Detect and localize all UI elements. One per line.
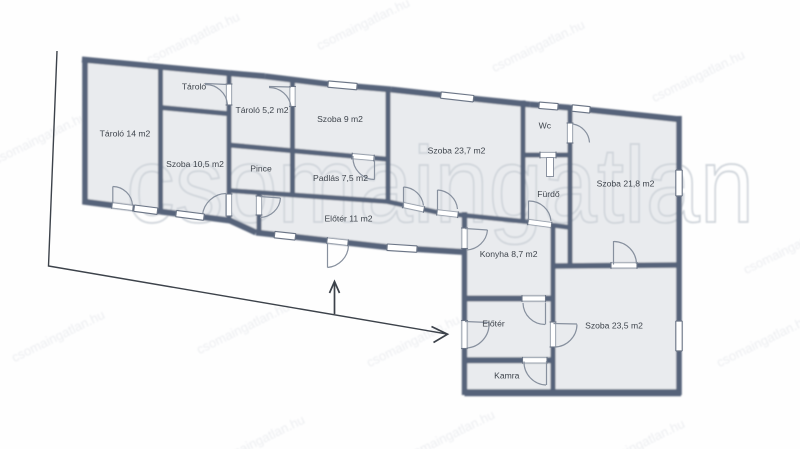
svg-text:Szoba 23,7 m2: Szoba 23,7 m2 (428, 146, 486, 156)
svg-text:Konyha 8,7 m2: Konyha 8,7 m2 (480, 249, 538, 259)
svg-text:csomaingatlan: csomaingatlan (126, 124, 754, 245)
svg-text:Wc: Wc (539, 120, 552, 130)
svg-text:Szoba 23,5 m2: Szoba 23,5 m2 (585, 321, 643, 331)
svg-text:Tároló: Tároló (182, 82, 207, 92)
svg-text:Előtér: Előtér (482, 319, 505, 329)
svg-text:Pince: Pince (250, 164, 272, 174)
svg-text:Szoba 10,5 m2: Szoba 10,5 m2 (166, 159, 224, 169)
svg-text:Tároló 5,2 m2: Tároló 5,2 m2 (235, 105, 288, 115)
svg-text:Előtér 11 m2: Előtér 11 m2 (324, 214, 372, 224)
svg-text:Tároló 14 m2: Tároló 14 m2 (100, 129, 151, 139)
svg-text:Szoba 9 m2: Szoba 9 m2 (317, 114, 363, 124)
svg-text:Kamra: Kamra (494, 370, 520, 380)
svg-text:Fürdő: Fürdő (537, 189, 560, 199)
svg-text:Szoba 21,8 m2: Szoba 21,8 m2 (597, 179, 655, 189)
svg-text:Padlás 7,5 m2: Padlás 7,5 m2 (313, 173, 368, 183)
